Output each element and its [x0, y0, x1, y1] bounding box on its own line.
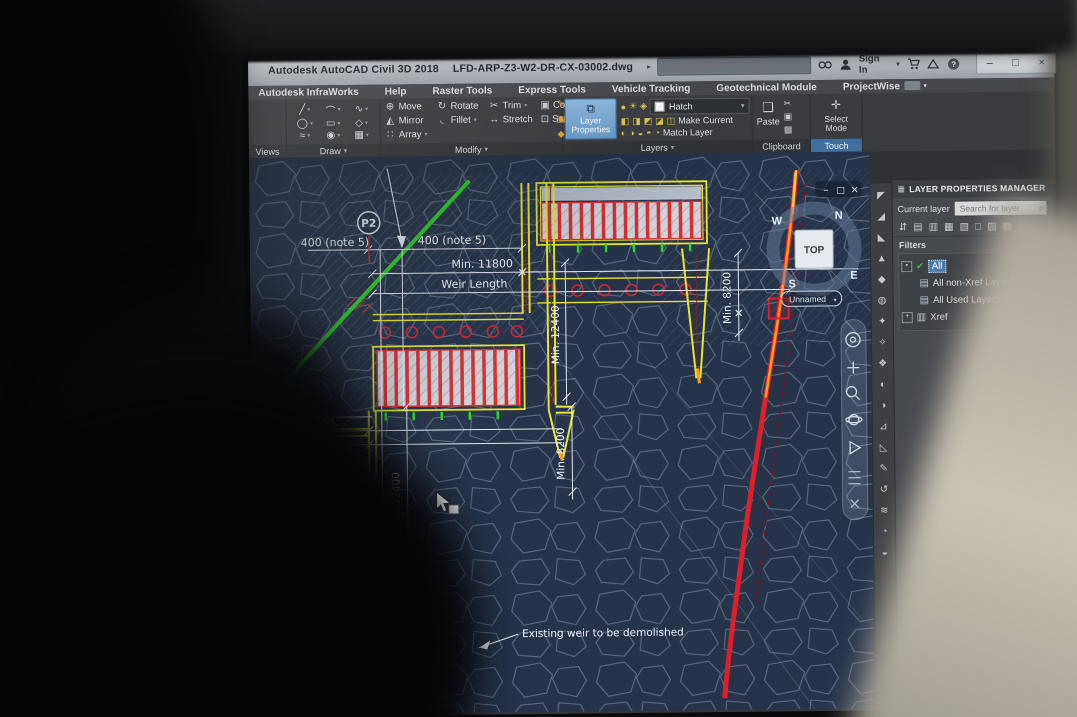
- toolbar-icon[interactable]: ✧: [878, 332, 887, 353]
- dim-text: Min. 11800: [451, 257, 513, 271]
- draw-tool-icon: ◉: [326, 130, 335, 141]
- ribbon-panel-clipboard: ❏ Paste ▾ ✂▣▩ Clipboard: [752, 94, 811, 153]
- menu-item[interactable]: Help: [385, 86, 407, 97]
- layer-thaw-sun-icon[interactable]: ☀: [629, 101, 637, 112]
- minimize-button[interactable]: –: [977, 57, 1003, 69]
- draw-tool-caret[interactable]: ▾: [310, 120, 313, 127]
- clipboard-icon: ❏: [762, 99, 774, 115]
- toolbar-icon[interactable]: ◑: [880, 395, 886, 416]
- layer-tool-icon[interactable]: ◪: [655, 116, 664, 127]
- toolbar-icon[interactable]: ✦: [878, 311, 887, 332]
- ribbon-panel-views: Views: [248, 100, 287, 158]
- layer-properties-button[interactable]: ⧉ Layer Properties: [564, 98, 616, 140]
- palette-tool-icon[interactable]: ⇵: [899, 222, 908, 233]
- toolbar-icon[interactable]: ✎: [880, 458, 889, 479]
- modify-tool-icon: ◟: [437, 115, 448, 126]
- toolbar-icon[interactable]: ◺: [880, 437, 888, 458]
- dim-text: Weir Length: [441, 277, 507, 291]
- restore-button[interactable]: □: [1003, 57, 1029, 69]
- ribbon-panel-modify: ⊕ Move ↻ Rotate: [380, 97, 563, 157]
- menu-item[interactable]: Autodesk InfraWorks: [258, 86, 359, 98]
- collapse-icon[interactable]: ▪: [901, 261, 912, 272]
- clipboard-tool-icon[interactable]: ▣: [784, 111, 793, 122]
- compass-west[interactable]: W: [772, 215, 783, 227]
- draw-tool-icon: ◯: [297, 118, 308, 129]
- modify-tool-button[interactable]: ⊡ Scale: [541, 112, 555, 126]
- layers-stack-icon: ⧉: [586, 102, 595, 116]
- draw-tool-icon: ◇: [355, 118, 363, 129]
- funnel-tip-orange: [697, 368, 699, 383]
- compass-south[interactable]: S: [788, 278, 795, 290]
- modify-tool-button[interactable]: ↔ Stretch: [489, 113, 541, 127]
- svg-text:▾: ▾: [834, 298, 837, 304]
- palette-tool-icon[interactable]: ▦: [944, 222, 954, 233]
- layers-palette-icon: ≣: [897, 184, 905, 195]
- toolbar-icon[interactable]: ≋: [880, 500, 889, 521]
- window-controls: – □ ×: [976, 52, 1056, 75]
- palette-tool-icon[interactable]: ▧: [960, 221, 970, 232]
- clipboard-tool-icon[interactable]: ▩: [784, 125, 793, 136]
- select-mode-button[interactable]: ✛ Select Mode: [810, 94, 861, 140]
- ribbon: Views ╱ ▾ ⌒ ▾: [248, 92, 1055, 158]
- modify-tool-icon: ✂: [488, 101, 499, 112]
- palette-title: LAYER PROPERTIES MANAGER: [909, 183, 1045, 194]
- check-icon: ✔: [916, 261, 924, 272]
- make-current-button[interactable]: Make Current: [678, 115, 733, 126]
- cart-icon[interactable]: [907, 57, 920, 71]
- layer-color-swatch: [655, 101, 665, 111]
- modify-tool-icon: ↔: [489, 114, 500, 125]
- layer-on-bulb-icon[interactable]: ●: [620, 102, 626, 112]
- menu-extra-tool[interactable]: ▾: [904, 81, 927, 90]
- p2-balloon: P2: [358, 212, 380, 234]
- modify-tool-icon: ∷: [385, 129, 396, 140]
- help-icon[interactable]: ?: [947, 57, 960, 71]
- draw-tool-caret[interactable]: ▾: [307, 133, 310, 140]
- modify-tool-button[interactable]: ∷ Array ▾: [385, 127, 437, 141]
- user-icon: [839, 58, 852, 72]
- draw-tool-caret[interactable]: ▾: [337, 120, 340, 127]
- dim-text: 400 (note 5): [418, 234, 486, 248]
- modify-tool-button[interactable]: ✂ Trim ▾: [488, 99, 540, 113]
- modify-tool-button[interactable]: ↻ Rotate: [436, 99, 488, 113]
- layer-tool-icon[interactable]: ◧: [621, 116, 630, 127]
- draw-tool-caret[interactable]: ▾: [365, 120, 368, 127]
- menu-item[interactable]: Raster Tools: [432, 85, 492, 97]
- sign-in-caret[interactable]: ▾: [896, 60, 900, 68]
- draw-tool-button[interactable]: ◉ ▾: [319, 130, 347, 143]
- layer-tool-icon[interactable]: ◔: [655, 128, 661, 138]
- toolbar-icon[interactable]: ◍: [878, 290, 887, 311]
- search-scope-caret[interactable]: ▸: [647, 63, 651, 71]
- folder-icon: ▥: [917, 312, 927, 323]
- draw-tool-caret[interactable]: ▾: [337, 132, 340, 139]
- menu-item[interactable]: Express Tools: [518, 84, 586, 96]
- search-binoculars-icon[interactable]: [818, 58, 832, 72]
- exchange-icon[interactable]: [927, 57, 940, 71]
- ribbon-panel-touch: ✛ Select Mode Touch: [810, 94, 863, 153]
- navigation-bar[interactable]: [841, 320, 868, 520]
- toolbar-icon[interactable]: ◤: [877, 185, 885, 206]
- svg-text:TOP: TOP: [804, 245, 825, 256]
- layer-tool-icon[interactable]: ◑: [629, 128, 635, 138]
- draw-tool-button[interactable]: ◯ ▾: [291, 118, 319, 131]
- toolbar-icon[interactable]: ❖: [878, 353, 887, 374]
- modify-tool-icon: ⊕: [384, 102, 395, 113]
- views-panel-label: Views: [256, 146, 280, 156]
- menu-item[interactable]: ProjectWise: [843, 81, 900, 93]
- toolbar-icon[interactable]: ◔: [881, 521, 887, 542]
- toolbar-icon[interactable]: ◣: [877, 227, 885, 248]
- drawing-restore-button[interactable]: □: [836, 186, 845, 196]
- modify-tool-icon: ◭: [385, 115, 396, 126]
- svg-text:?: ?: [952, 59, 957, 68]
- draw-tool-button[interactable]: ╱ ▾: [290, 101, 318, 118]
- filter-folder-icon: ▤: [919, 278, 929, 289]
- draw-tool-icon: ∿: [355, 103, 364, 114]
- expand-icon[interactable]: +: [902, 312, 913, 323]
- toolbar-icon[interactable]: ◆: [878, 269, 886, 290]
- dim-text: 400 (note 5): [301, 236, 369, 250]
- help-search-input[interactable]: [663, 59, 806, 73]
- palette-tool-icon[interactable]: ▤: [913, 222, 923, 233]
- dim-text-vertical: Min. 12400: [550, 305, 563, 364]
- ribbon-panel-layers: ⧉ Layer Properties ● ☀ ◈ Hatch ▾: [562, 95, 753, 155]
- paste-button[interactable]: ❏ Paste ▾: [756, 99, 779, 135]
- draw-tool-caret[interactable]: ▾: [365, 105, 368, 112]
- document-name: LFD-ARP-Z3-W2-DR-CX-03002.dwg: [453, 61, 633, 75]
- layer-tool-icon[interactable]: ◓: [646, 128, 652, 138]
- toolbar-icon[interactable]: ◒: [882, 542, 888, 563]
- modify-tool-button[interactable]: ⊕ Move: [384, 100, 436, 114]
- photo-scene: Autodesk AutoCAD Civil 3D 2018LFD-ARP-Z3…: [0, 0, 1077, 717]
- drawing-close-button[interactable]: ×: [850, 185, 859, 196]
- modify-tool-icon: ↻: [436, 101, 447, 112]
- draw-tool-button[interactable]: ∿ ▾: [347, 101, 376, 118]
- compass-north[interactable]: N: [835, 210, 843, 222]
- clipboard-panel-label: Clipboard: [762, 141, 801, 151]
- touch-panel-label: Touch: [824, 140, 848, 150]
- palette-tool-icon[interactable]: ▥: [929, 222, 939, 233]
- draw-tool-icon: ╱: [299, 104, 305, 115]
- sign-in-button[interactable]: Sign In: [859, 53, 889, 75]
- layer-tool-icon[interactable]: ◫: [667, 116, 676, 127]
- modify-tool-button[interactable]: ▣ Copy: [540, 99, 554, 113]
- palette-title-bar[interactable]: ≣ LAYER PROPERTIES MANAGER: [892, 179, 1052, 199]
- current-layer-dropdown[interactable]: Hatch ▾: [650, 97, 750, 114]
- svg-text:Existing weir to be demolished: Existing weir to be demolished: [522, 626, 684, 640]
- layer-lock-icon[interactable]: ◈: [640, 101, 647, 112]
- modify-tool-icon: ⊡: [541, 114, 550, 125]
- layer-tool-icon[interactable]: ◐: [621, 128, 627, 138]
- layer-tool-icon[interactable]: ◨: [632, 116, 641, 127]
- draw-tool-caret[interactable]: ▾: [307, 106, 310, 113]
- palette-tool-icon[interactable]: □: [975, 221, 981, 232]
- crosshair-icon: ✛: [831, 99, 841, 113]
- draw-panel-label[interactable]: Draw▾: [287, 144, 380, 158]
- app-title: Autodesk AutoCAD Civil 3D 2018: [268, 63, 439, 77]
- draw-tool-icon: ▦: [354, 130, 364, 141]
- compass-east[interactable]: E: [850, 270, 857, 282]
- help-search-box[interactable]: [658, 56, 811, 76]
- toolbar-icon[interactable]: ⊿: [879, 416, 888, 437]
- svg-text:Unnamed: Unnamed: [789, 294, 826, 304]
- toolbar-icon[interactable]: ↺: [880, 479, 889, 500]
- draw-tool-icon: ≈: [300, 131, 306, 142]
- layer-tool-icon[interactable]: ◩: [644, 116, 653, 127]
- toolbar-icon[interactable]: ◐: [880, 374, 886, 395]
- menu-extra-icon: [904, 81, 920, 90]
- dim-text-vertical: Min. 8200: [555, 428, 568, 480]
- filter-folder-icon: ▤: [920, 295, 930, 306]
- svg-text:P2: P2: [361, 218, 376, 230]
- draw-tool-button[interactable]: ◇ ▾: [347, 117, 375, 130]
- toolbar-icon[interactable]: ▲: [877, 248, 887, 269]
- drawing-window-controls: – □ ×: [815, 181, 861, 197]
- current-layer-name: Hatch: [669, 101, 693, 111]
- draw-tool-button[interactable]: ▦ ▾: [347, 129, 375, 142]
- modify-tool-icon: ▣: [540, 100, 550, 111]
- current-layer-label: Current layer: [898, 204, 950, 215]
- draw-tool-caret[interactable]: ▾: [338, 106, 341, 113]
- draw-tool-button[interactable]: ⌒ ▾: [319, 101, 347, 118]
- match-layer-button[interactable]: Match Layer: [663, 127, 713, 138]
- window-title: Autodesk AutoCAD Civil 3D 2018LFD-ARP-Z3…: [268, 61, 647, 77]
- menu-item[interactable]: Geotechnical Module: [716, 82, 817, 94]
- draw-tool-caret[interactable]: ▾: [366, 132, 369, 139]
- draw-tool-button[interactable]: ▭ ▾: [319, 117, 347, 130]
- draw-tool-button[interactable]: ≈ ▾: [291, 130, 319, 143]
- drawing-minimize-button[interactable]: –: [823, 185, 828, 196]
- menu-item[interactable]: Vehicle Tracking: [612, 83, 690, 95]
- dim-text-vertical: Min. 8200: [721, 272, 734, 324]
- toolbar-icon[interactable]: ◢: [877, 206, 885, 227]
- layer-tool-icon[interactable]: ◒: [638, 128, 644, 138]
- clipboard-tool-icon[interactable]: ✂: [783, 98, 792, 109]
- ribbon-panel-draw: ╱ ▾ ⌒ ▾ ∿ ▾: [286, 99, 381, 158]
- modify-tool-button[interactable]: ◭ Mirror: [385, 114, 437, 128]
- draw-tool-icon: ⌒: [325, 102, 335, 117]
- draw-tool-icon: ▭: [326, 118, 336, 129]
- modify-tool-button[interactable]: ◟ Fillet ▾: [437, 113, 489, 127]
